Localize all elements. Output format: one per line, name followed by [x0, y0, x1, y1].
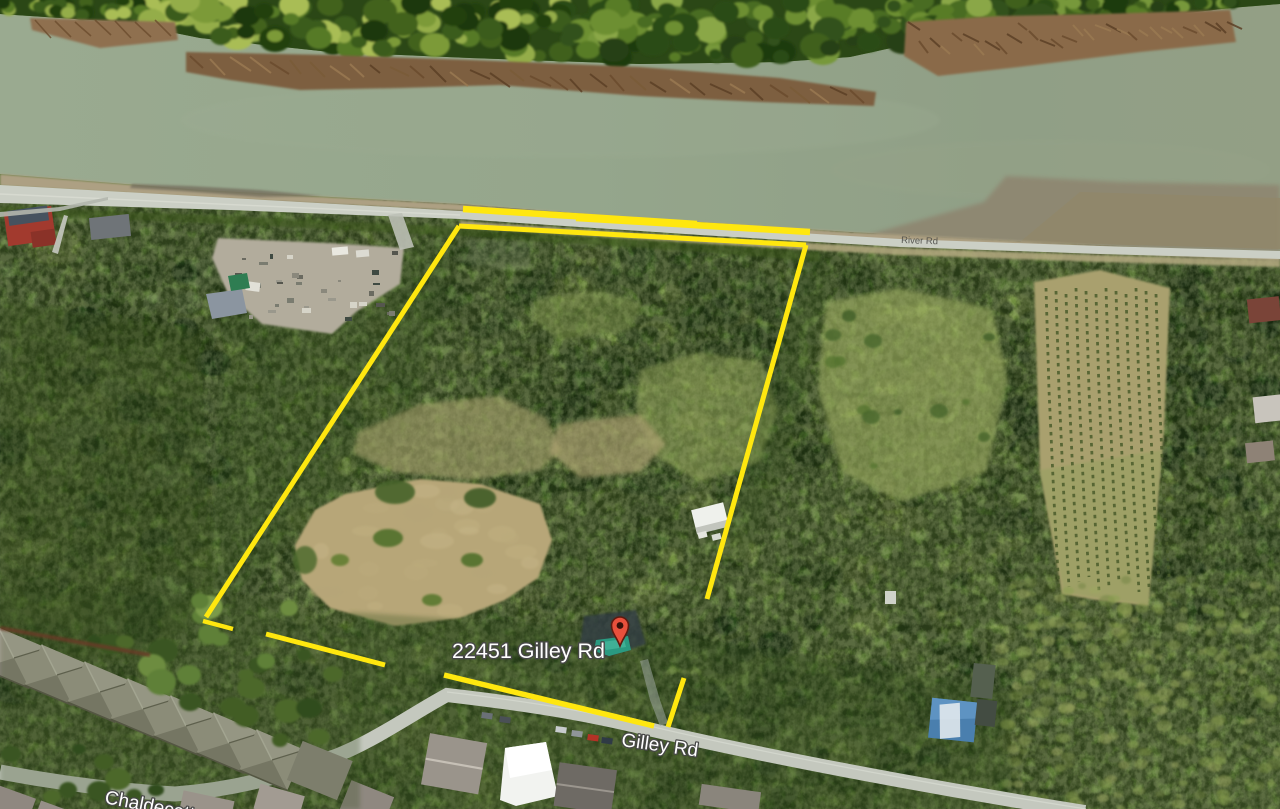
svg-text:River Rd: River Rd — [901, 235, 938, 247]
svg-text:22451 Gilley Rd: 22451 Gilley Rd — [452, 639, 605, 663]
